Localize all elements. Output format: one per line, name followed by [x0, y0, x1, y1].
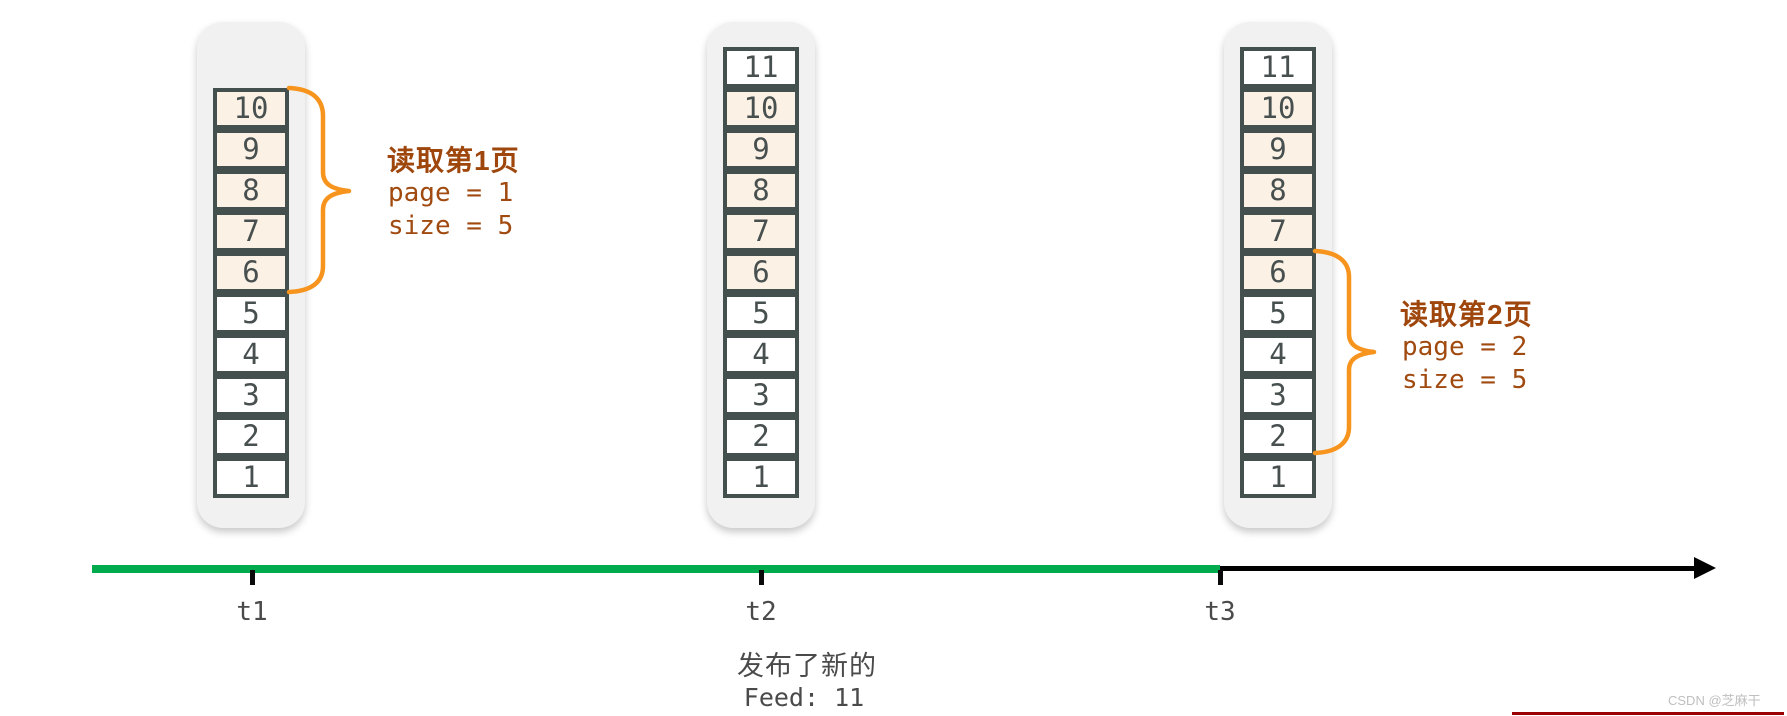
feed-cell-6: 6: [1240, 252, 1316, 293]
feed-cell-5: 5: [213, 293, 289, 334]
timeline-label-t3: t3: [1190, 597, 1250, 627]
page2-annotation-title: 读取第2页: [1400, 293, 1533, 333]
timeline-tick-t2: [759, 570, 764, 585]
timeline-arrowhead-icon: [1694, 557, 1716, 579]
feed-cell-7: 7: [213, 211, 289, 252]
feed-cell-8: 8: [1240, 170, 1316, 211]
timeline-tick-t1: [250, 570, 255, 585]
feed-cell-10: 10: [213, 88, 289, 129]
feed-cell-1: 1: [1240, 457, 1316, 498]
feed-cell-11: 11: [1240, 47, 1316, 88]
feed-cell-10: 10: [1240, 88, 1316, 129]
watermark-underline: [1512, 712, 1784, 715]
timeline-green-segment: [92, 565, 1220, 573]
feed-cell-7: 7: [723, 211, 799, 252]
csdn-watermark: CSDN @芝麻干: [1668, 690, 1761, 709]
feed-cell-4: 4: [723, 334, 799, 375]
feed-cell-4: 4: [213, 334, 289, 375]
feed-cell-9: 9: [1240, 129, 1316, 170]
feed-cell-7: 7: [1240, 211, 1316, 252]
feed-cell-9: 9: [723, 129, 799, 170]
feed-cell-10: 10: [723, 88, 799, 129]
feed-cell-11: 11: [723, 47, 799, 88]
timeline-label-t2: t2: [731, 597, 791, 627]
timeline-black-segment: [1220, 566, 1696, 571]
timeline-tick-t3: [1218, 570, 1223, 585]
feed-pagination-diagram: 10987654321 1110987654321 1110987654321 …: [0, 0, 1787, 716]
page1-annotation-size: size = 5: [388, 211, 513, 241]
feed-cell-8: 8: [723, 170, 799, 211]
feed-stack-t2: 1110987654321: [707, 22, 815, 528]
page2-annotation-size: size = 5: [1402, 365, 1527, 395]
feed-cell-5: 5: [1240, 293, 1316, 334]
feed-stack-t3: 1110987654321: [1224, 22, 1332, 528]
new-feed-caption: 发布了新的: [657, 644, 957, 683]
feed-cell-9: 9: [213, 129, 289, 170]
feed-cell-2: 2: [213, 416, 289, 457]
feed-cell-3: 3: [213, 375, 289, 416]
feed-cell-1: 1: [213, 457, 289, 498]
page2-annotation-page: page = 2: [1402, 332, 1527, 362]
feed-cell-3: 3: [723, 375, 799, 416]
feed-cell-6: 6: [723, 252, 799, 293]
feed-cell-2: 2: [723, 416, 799, 457]
timeline-label-t1: t1: [222, 597, 282, 627]
feed-cell-1: 1: [723, 457, 799, 498]
feed-cell-8: 8: [213, 170, 289, 211]
feed-stack-t1: 10987654321: [197, 22, 305, 528]
new-feed-value: Feed: 11: [654, 683, 954, 712]
feed-cell-4: 4: [1240, 334, 1316, 375]
feed-cell-3: 3: [1240, 375, 1316, 416]
page1-annotation-page: page = 1: [388, 178, 513, 208]
page1-annotation-title: 读取第1页: [387, 139, 520, 179]
feed-cell-2: 2: [1240, 416, 1316, 457]
feed-cell-6: 6: [213, 252, 289, 293]
feed-cell-5: 5: [723, 293, 799, 334]
